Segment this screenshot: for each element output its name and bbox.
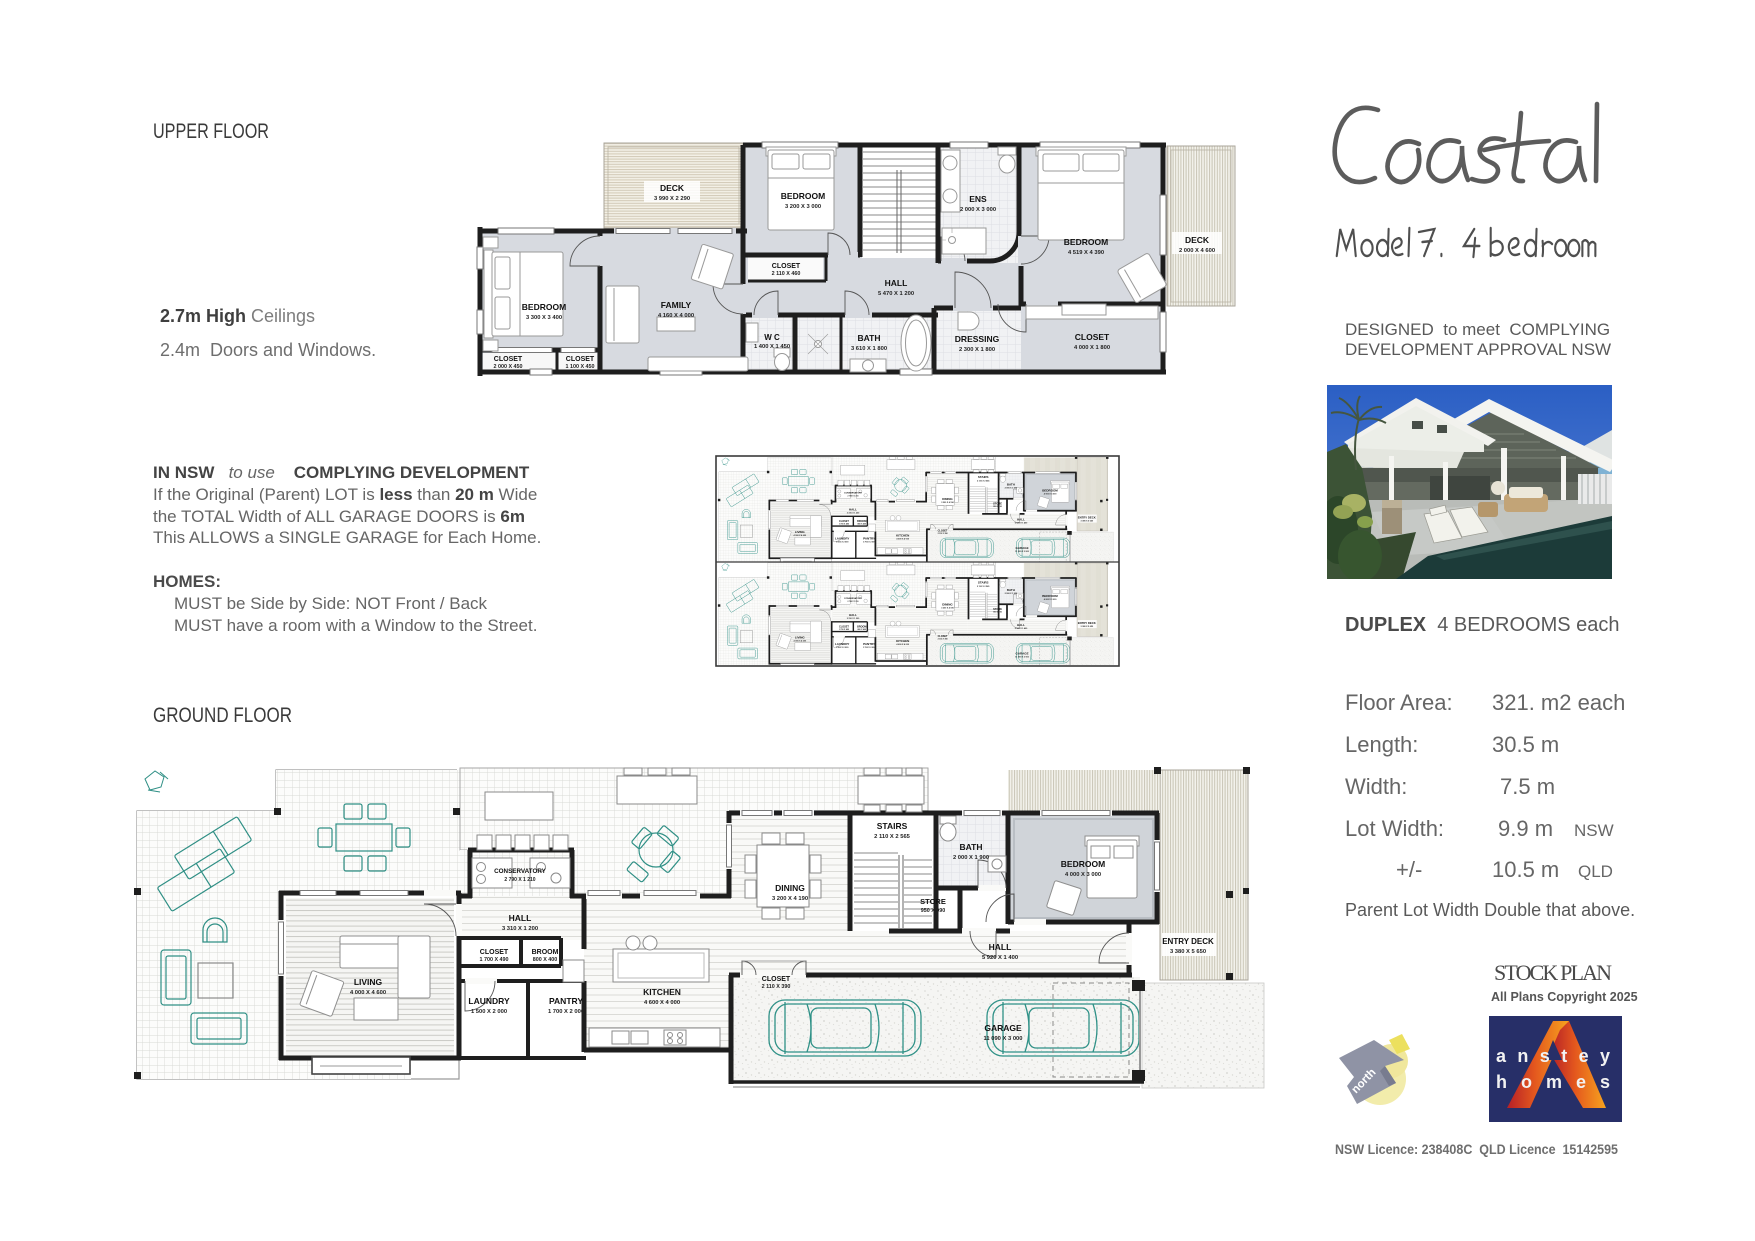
svg-text:DECK: DECK xyxy=(1185,235,1210,245)
svg-text:950 X 990: 950 X 990 xyxy=(921,908,946,914)
svg-text:321. m2 each: 321. m2 each xyxy=(1492,690,1625,715)
svg-text:STAIRS: STAIRS xyxy=(877,821,908,831)
svg-text:4 160 X 4 000: 4 160 X 4 000 xyxy=(658,313,694,319)
svg-text:3 200 X 3 000: 3 200 X 3 000 xyxy=(785,204,821,210)
svg-text:2 790 X 1 210: 2 790 X 1 210 xyxy=(504,877,535,883)
svg-text:5 920 X 1 400: 5 920 X 1 400 xyxy=(982,955,1018,961)
svg-text:MUST be Side by Side: NOT Fron: MUST be Side by Side: NOT Front / Back xyxy=(174,594,488,613)
svg-text:BATH: BATH xyxy=(858,333,881,343)
svg-text:+/-: +/- xyxy=(1396,857,1422,882)
svg-text:3 610 X 1 800: 3 610 X 1 800 xyxy=(851,346,887,352)
svg-text:1 100 X 450: 1 100 X 450 xyxy=(565,364,594,370)
svg-text:DESIGNED to meet COMPLYING: DESIGNED to meet COMPLYING xyxy=(1345,320,1610,339)
svg-text:2 110 X 460: 2 110 X 460 xyxy=(772,271,801,277)
svg-text:1 400 X 1 450: 1 400 X 1 450 xyxy=(754,344,790,350)
svg-text:9.9 m: 9.9 m xyxy=(1498,816,1553,841)
svg-text:11 090 X 3 000: 11 090 X 3 000 xyxy=(983,1036,1022,1042)
svg-text:10.5 m: 10.5 m xyxy=(1492,857,1559,882)
svg-text:Width:: Width: xyxy=(1345,774,1407,799)
svg-text:ENS: ENS xyxy=(969,194,987,204)
svg-text:DINING: DINING xyxy=(775,883,805,893)
svg-text:BEDROOM: BEDROOM xyxy=(1064,237,1108,247)
svg-text:ENTRY DECK: ENTRY DECK xyxy=(1162,937,1214,946)
svg-text:800 X 400: 800 X 400 xyxy=(533,957,558,963)
svg-text:2 300 X 1 800: 2 300 X 1 800 xyxy=(959,347,995,353)
svg-text:HALL: HALL xyxy=(885,278,908,288)
svg-text:QLD: QLD xyxy=(1578,862,1613,881)
svg-text:1 700 X 2 000: 1 700 X 2 000 xyxy=(548,1009,584,1015)
svg-text:HALL: HALL xyxy=(989,942,1012,952)
svg-text:30.5 m: 30.5 m xyxy=(1492,732,1559,757)
svg-text:CLOSET: CLOSET xyxy=(762,976,791,983)
svg-text:STORE: STORE xyxy=(920,897,946,906)
svg-text:All Plans Copyright 2025: All Plans Copyright 2025 xyxy=(1491,990,1638,1004)
svg-text:1 700 X 490: 1 700 X 490 xyxy=(479,957,508,963)
svg-text:BEDROOM: BEDROOM xyxy=(1061,859,1105,869)
svg-text:2 000 X 1 900: 2 000 X 1 900 xyxy=(953,855,989,861)
svg-text:NSW Licence: 238408C QLD Lice: NSW Licence: 238408C QLD Licence 1514259… xyxy=(1335,1141,1618,1157)
svg-text:the TOTAL Width of ALL GARAGE: the TOTAL Width of ALL GARAGE DOORS is 6… xyxy=(153,507,525,526)
svg-text:2.7m High Ceilings: 2.7m High Ceilings xyxy=(160,306,315,326)
svg-text:IN NSW to use COMPLYING D: IN NSW to use COMPLYING DEVELOPMENT xyxy=(153,463,530,482)
svg-text:If the Original (Parent) LOT i: If the Original (Parent) LOT is less tha… xyxy=(153,485,537,504)
svg-text:4 000 X 3 000: 4 000 X 3 000 xyxy=(1065,872,1101,878)
svg-text:2 000 X 450: 2 000 X 450 xyxy=(493,364,522,370)
svg-text:CLOSET: CLOSET xyxy=(772,263,801,270)
svg-text:BEDROOM: BEDROOM xyxy=(522,302,566,312)
svg-text:GROUND FLOOR: GROUND FLOOR xyxy=(153,704,292,727)
svg-text:This ALLOWS a SINGLE GARAGE fo: This ALLOWS a SINGLE GARAGE for Each Hom… xyxy=(153,528,541,547)
svg-text:2 000 X 4 600: 2 000 X 4 600 xyxy=(1179,248,1215,254)
svg-text:2 000 X 3 000: 2 000 X 3 000 xyxy=(960,207,996,213)
svg-text:CLOSET: CLOSET xyxy=(1075,332,1110,342)
svg-text:BEDROOM: BEDROOM xyxy=(781,191,825,201)
svg-text:1 500 X 2 000: 1 500 X 2 000 xyxy=(471,1009,507,1015)
svg-text:DEVELOPMENT APPROVAL NSW: DEVELOPMENT APPROVAL NSW xyxy=(1345,340,1611,359)
svg-text:LAUNDRY: LAUNDRY xyxy=(468,996,510,1006)
svg-text:CONSERVATORY: CONSERVATORY xyxy=(494,868,547,875)
svg-text:2 110 X 2 565: 2 110 X 2 565 xyxy=(874,834,911,840)
svg-text:CLOSET: CLOSET xyxy=(566,356,595,363)
svg-text:BROOM: BROOM xyxy=(532,949,559,956)
svg-text:2.4m Doors and Windows.: 2.4m Doors and Windows. xyxy=(160,340,376,360)
svg-text:3 200 X 4 190: 3 200 X 4 190 xyxy=(772,896,808,902)
svg-text:Floor Area:: Floor Area: xyxy=(1345,690,1453,715)
svg-text:4 600 X 4 000: 4 600 X 4 000 xyxy=(644,1000,680,1006)
svg-text:CLOSET: CLOSET xyxy=(480,949,509,956)
svg-text:4 000 X 4 600: 4 000 X 4 600 xyxy=(350,990,386,996)
svg-text:DUPLEX 4 BEDROOMS each: DUPLEX 4 BEDROOMS each xyxy=(1345,614,1620,636)
svg-text:4 000 X 1 800: 4 000 X 1 800 xyxy=(1074,345,1110,351)
svg-text:CLOSET: CLOSET xyxy=(494,356,523,363)
svg-text:BATH: BATH xyxy=(960,842,983,852)
svg-text:Parent Lot Width Double that a: Parent Lot Width Double that above. xyxy=(1345,900,1635,920)
svg-text:MUST have a room with a Window: MUST have a room with a Window to the St… xyxy=(174,616,537,635)
svg-text:3 990 X 2 290: 3 990 X 2 290 xyxy=(654,196,690,202)
svg-text:W C: W C xyxy=(764,333,780,342)
svg-text:3 380 X 5 650: 3 380 X 5 650 xyxy=(1170,949,1206,955)
svg-text:KITCHEN: KITCHEN xyxy=(643,987,681,997)
svg-text:LIVING: LIVING xyxy=(354,977,383,987)
svg-text:DRESSING: DRESSING xyxy=(955,334,1000,344)
svg-text:STOCK PLAN: STOCK PLAN xyxy=(1494,960,1612,985)
svg-text:3 300 X 3 400: 3 300 X 3 400 xyxy=(526,315,562,321)
svg-text:HOMES:: HOMES: xyxy=(153,572,221,591)
svg-text:7.5 m: 7.5 m xyxy=(1500,774,1555,799)
svg-text:GARAGE: GARAGE xyxy=(984,1023,1022,1033)
svg-text:DECK: DECK xyxy=(660,183,685,193)
svg-text:UPPER FLOOR: UPPER FLOOR xyxy=(153,120,269,143)
svg-text:NSW: NSW xyxy=(1574,821,1614,840)
svg-text:Lot Width:: Lot Width: xyxy=(1345,816,1444,841)
svg-text:2 110 X 390: 2 110 X 390 xyxy=(762,984,791,990)
svg-text:FAMILY: FAMILY xyxy=(661,300,692,310)
svg-text:PANTRY: PANTRY xyxy=(549,996,583,1006)
svg-text:3 310 X 1 200: 3 310 X 1 200 xyxy=(502,926,538,932)
svg-text:Length:: Length: xyxy=(1345,732,1418,757)
svg-text:HALL: HALL xyxy=(509,913,532,923)
svg-text:5 470 X 1 200: 5 470 X 1 200 xyxy=(878,291,914,297)
svg-text:4 519 X 4 390: 4 519 X 4 390 xyxy=(1068,250,1104,256)
